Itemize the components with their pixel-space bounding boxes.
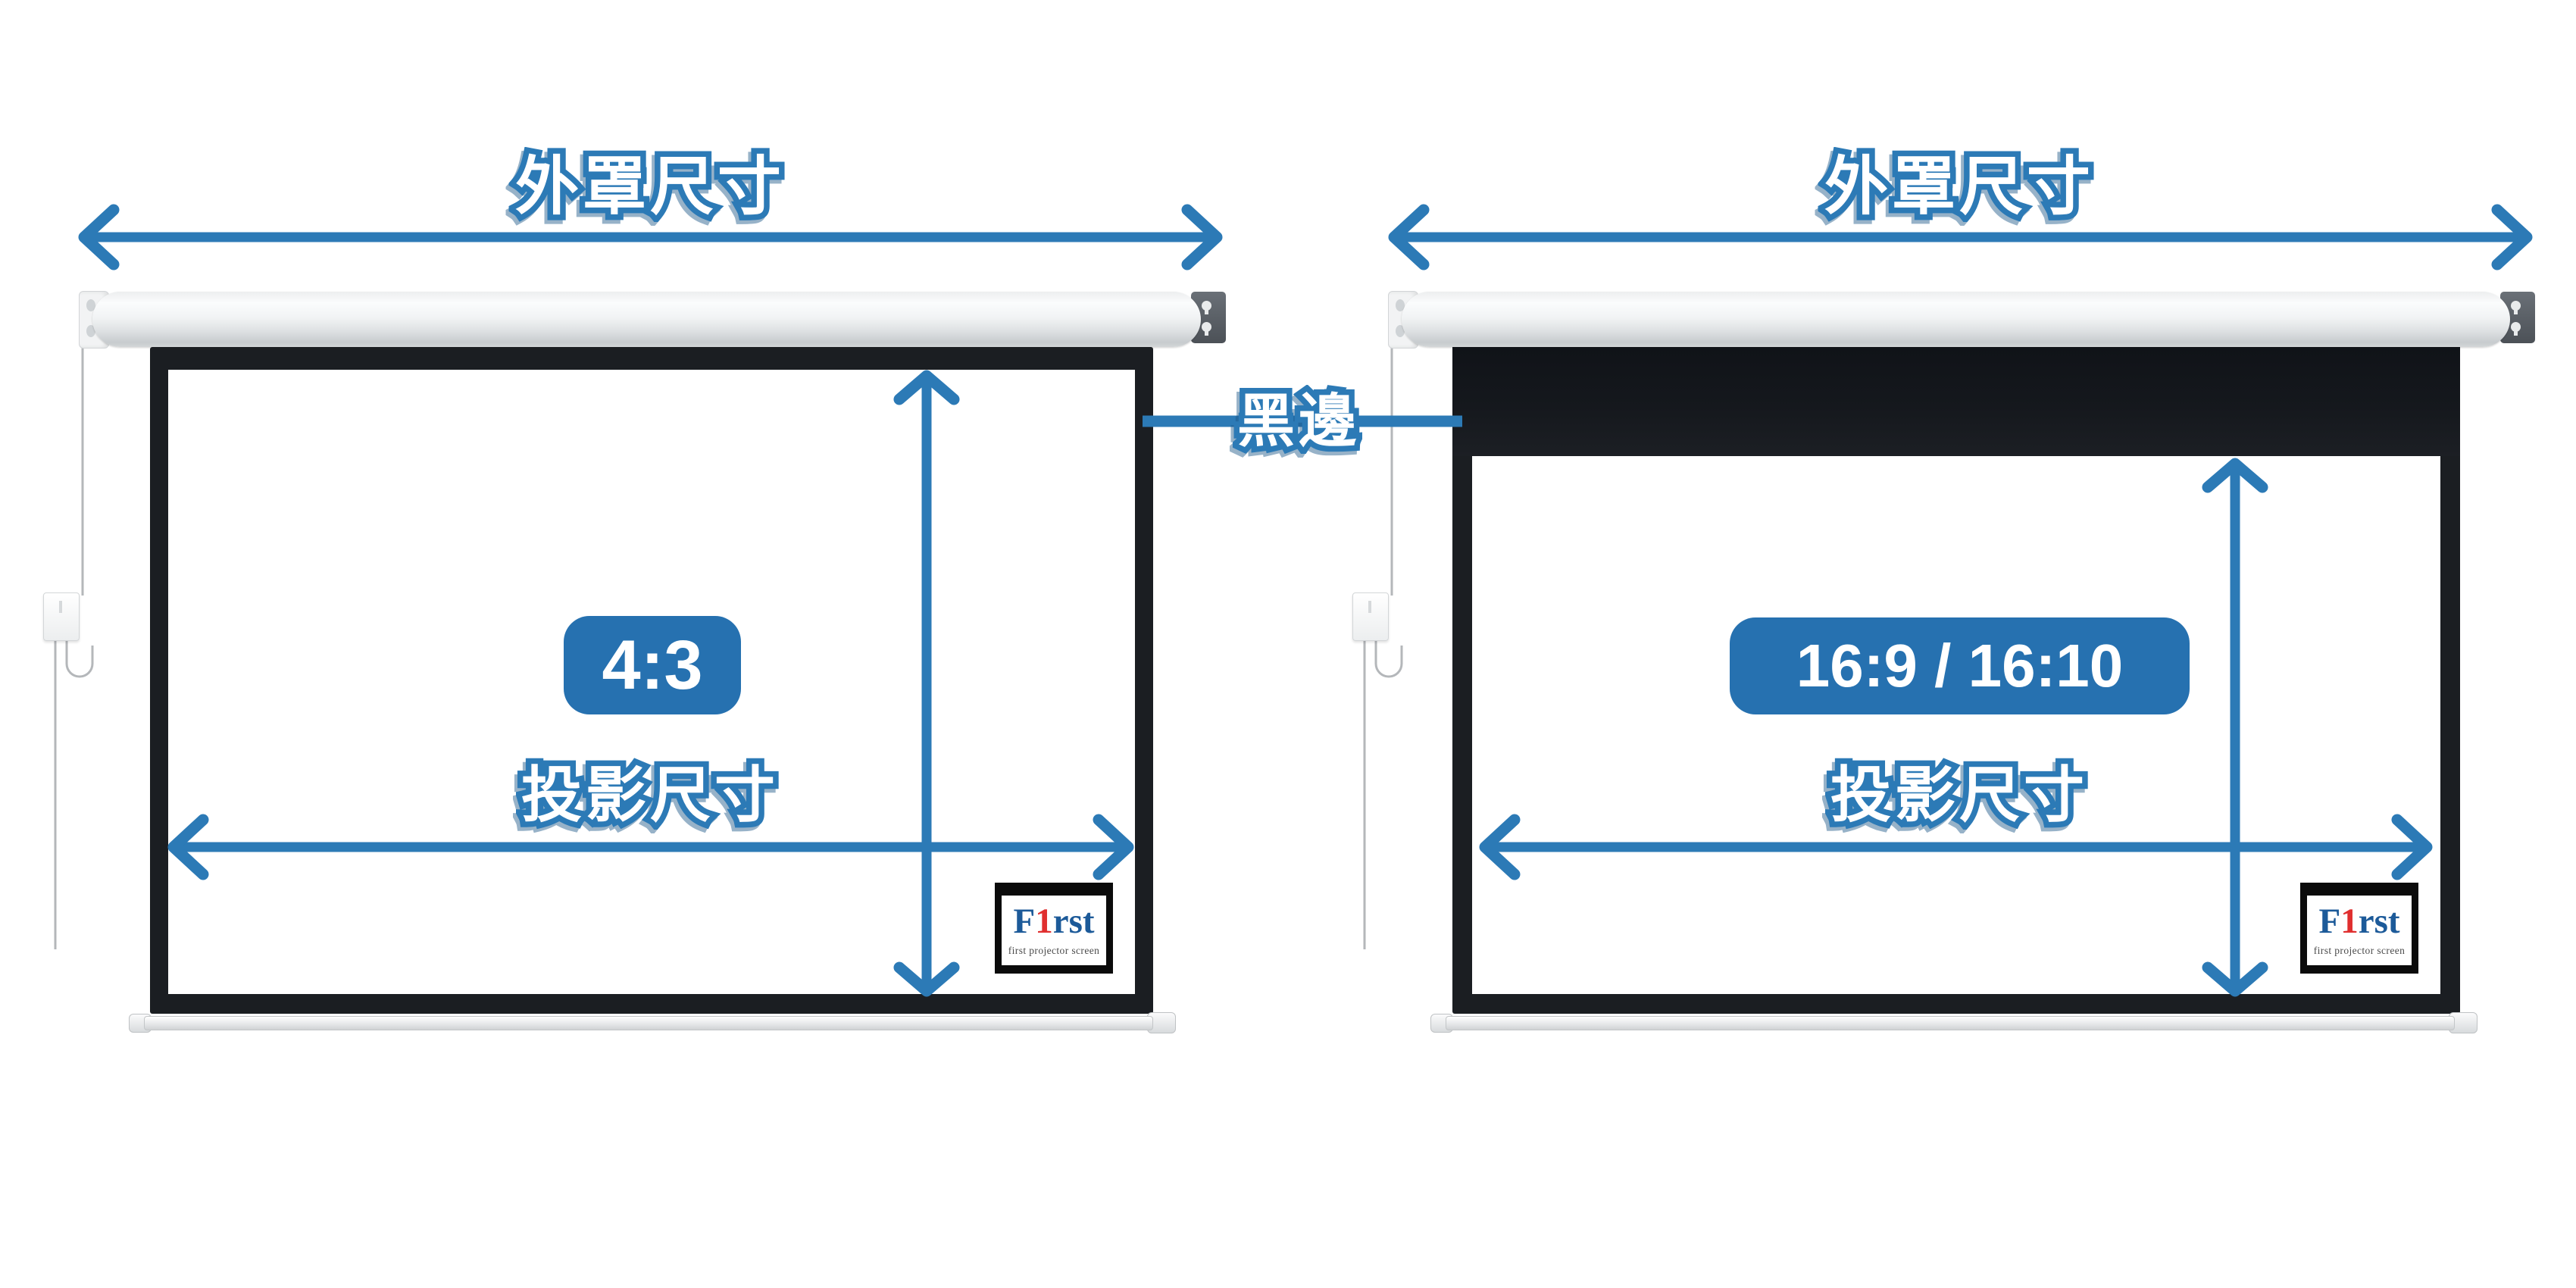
first-logo: F1rst first projector screen bbox=[2300, 883, 2418, 974]
logo-letter: 1 bbox=[1035, 902, 1053, 941]
left-projection-height-arrow bbox=[899, 376, 954, 991]
right-projection-height-arrow bbox=[2208, 464, 2262, 991]
left-housing-size-label: 外罩尺寸外罩尺寸 bbox=[515, 155, 785, 218]
right-aspect-ratio-badge: 16:9 / 16:10 bbox=[1730, 617, 2190, 714]
logo-tagline: first projector screen bbox=[1008, 945, 1100, 957]
right-projection-size-label: 投影尺寸投影尺寸 bbox=[1830, 765, 2088, 826]
logo-letter: rst bbox=[1053, 902, 1095, 941]
logo-brand: F1rst bbox=[1013, 904, 1094, 939]
aspect-ratio-value: 4:3 bbox=[602, 630, 703, 700]
logo-tagline: first projector screen bbox=[2314, 945, 2406, 957]
logo-letter: F bbox=[2318, 902, 2340, 941]
first-logo: F1rst first projector screen bbox=[995, 883, 1113, 974]
aspect-ratio-value: 16:9 / 16:10 bbox=[1796, 636, 2123, 696]
left-aspect-ratio-badge: 4:3 bbox=[564, 616, 741, 714]
projector-screen-dimension-diagram: { "black_border_label": "黑邊", "panels": … bbox=[0, 0, 2576, 1288]
left-projection-size-label: 投影尺寸投影尺寸 bbox=[521, 765, 779, 826]
logo-letter: F bbox=[1013, 902, 1035, 941]
logo-letter: rst bbox=[2359, 902, 2400, 941]
logo-letter: 1 bbox=[2340, 902, 2359, 941]
black-border-label: 黑邊黑邊 bbox=[1237, 393, 1360, 451]
logo-brand: F1rst bbox=[2318, 904, 2399, 939]
right-housing-size-label: 外罩尺寸外罩尺寸 bbox=[1824, 155, 2094, 218]
dimension-arrows-layer bbox=[0, 0, 2576, 1288]
